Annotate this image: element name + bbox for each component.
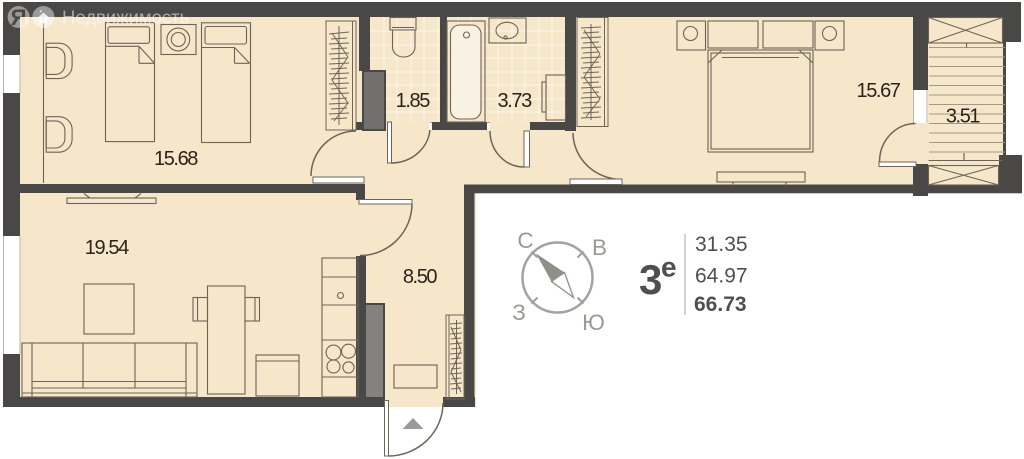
svg-text:Ю: Ю bbox=[582, 310, 605, 335]
svg-text:15.68: 15.68 bbox=[154, 148, 198, 170]
svg-text:64.97: 64.97 bbox=[695, 265, 748, 288]
svg-text:15.67: 15.67 bbox=[856, 80, 900, 102]
svg-text:Недвижимость: Недвижимость bbox=[62, 7, 189, 28]
svg-text:3: 3 bbox=[639, 256, 662, 303]
svg-text:8.50: 8.50 bbox=[403, 266, 438, 288]
svg-text:66.73: 66.73 bbox=[694, 293, 747, 316]
svg-text:З: З bbox=[512, 300, 526, 325]
svg-text:19.54: 19.54 bbox=[85, 237, 129, 259]
svg-text:В: В bbox=[592, 235, 607, 260]
svg-text:1.85: 1.85 bbox=[396, 90, 431, 112]
svg-text:3.51: 3.51 bbox=[946, 106, 981, 128]
svg-text:31.35: 31.35 bbox=[695, 233, 748, 256]
svg-text:3.73: 3.73 bbox=[498, 90, 533, 112]
svg-text:С: С bbox=[517, 228, 533, 253]
svg-text:е: е bbox=[661, 252, 677, 283]
